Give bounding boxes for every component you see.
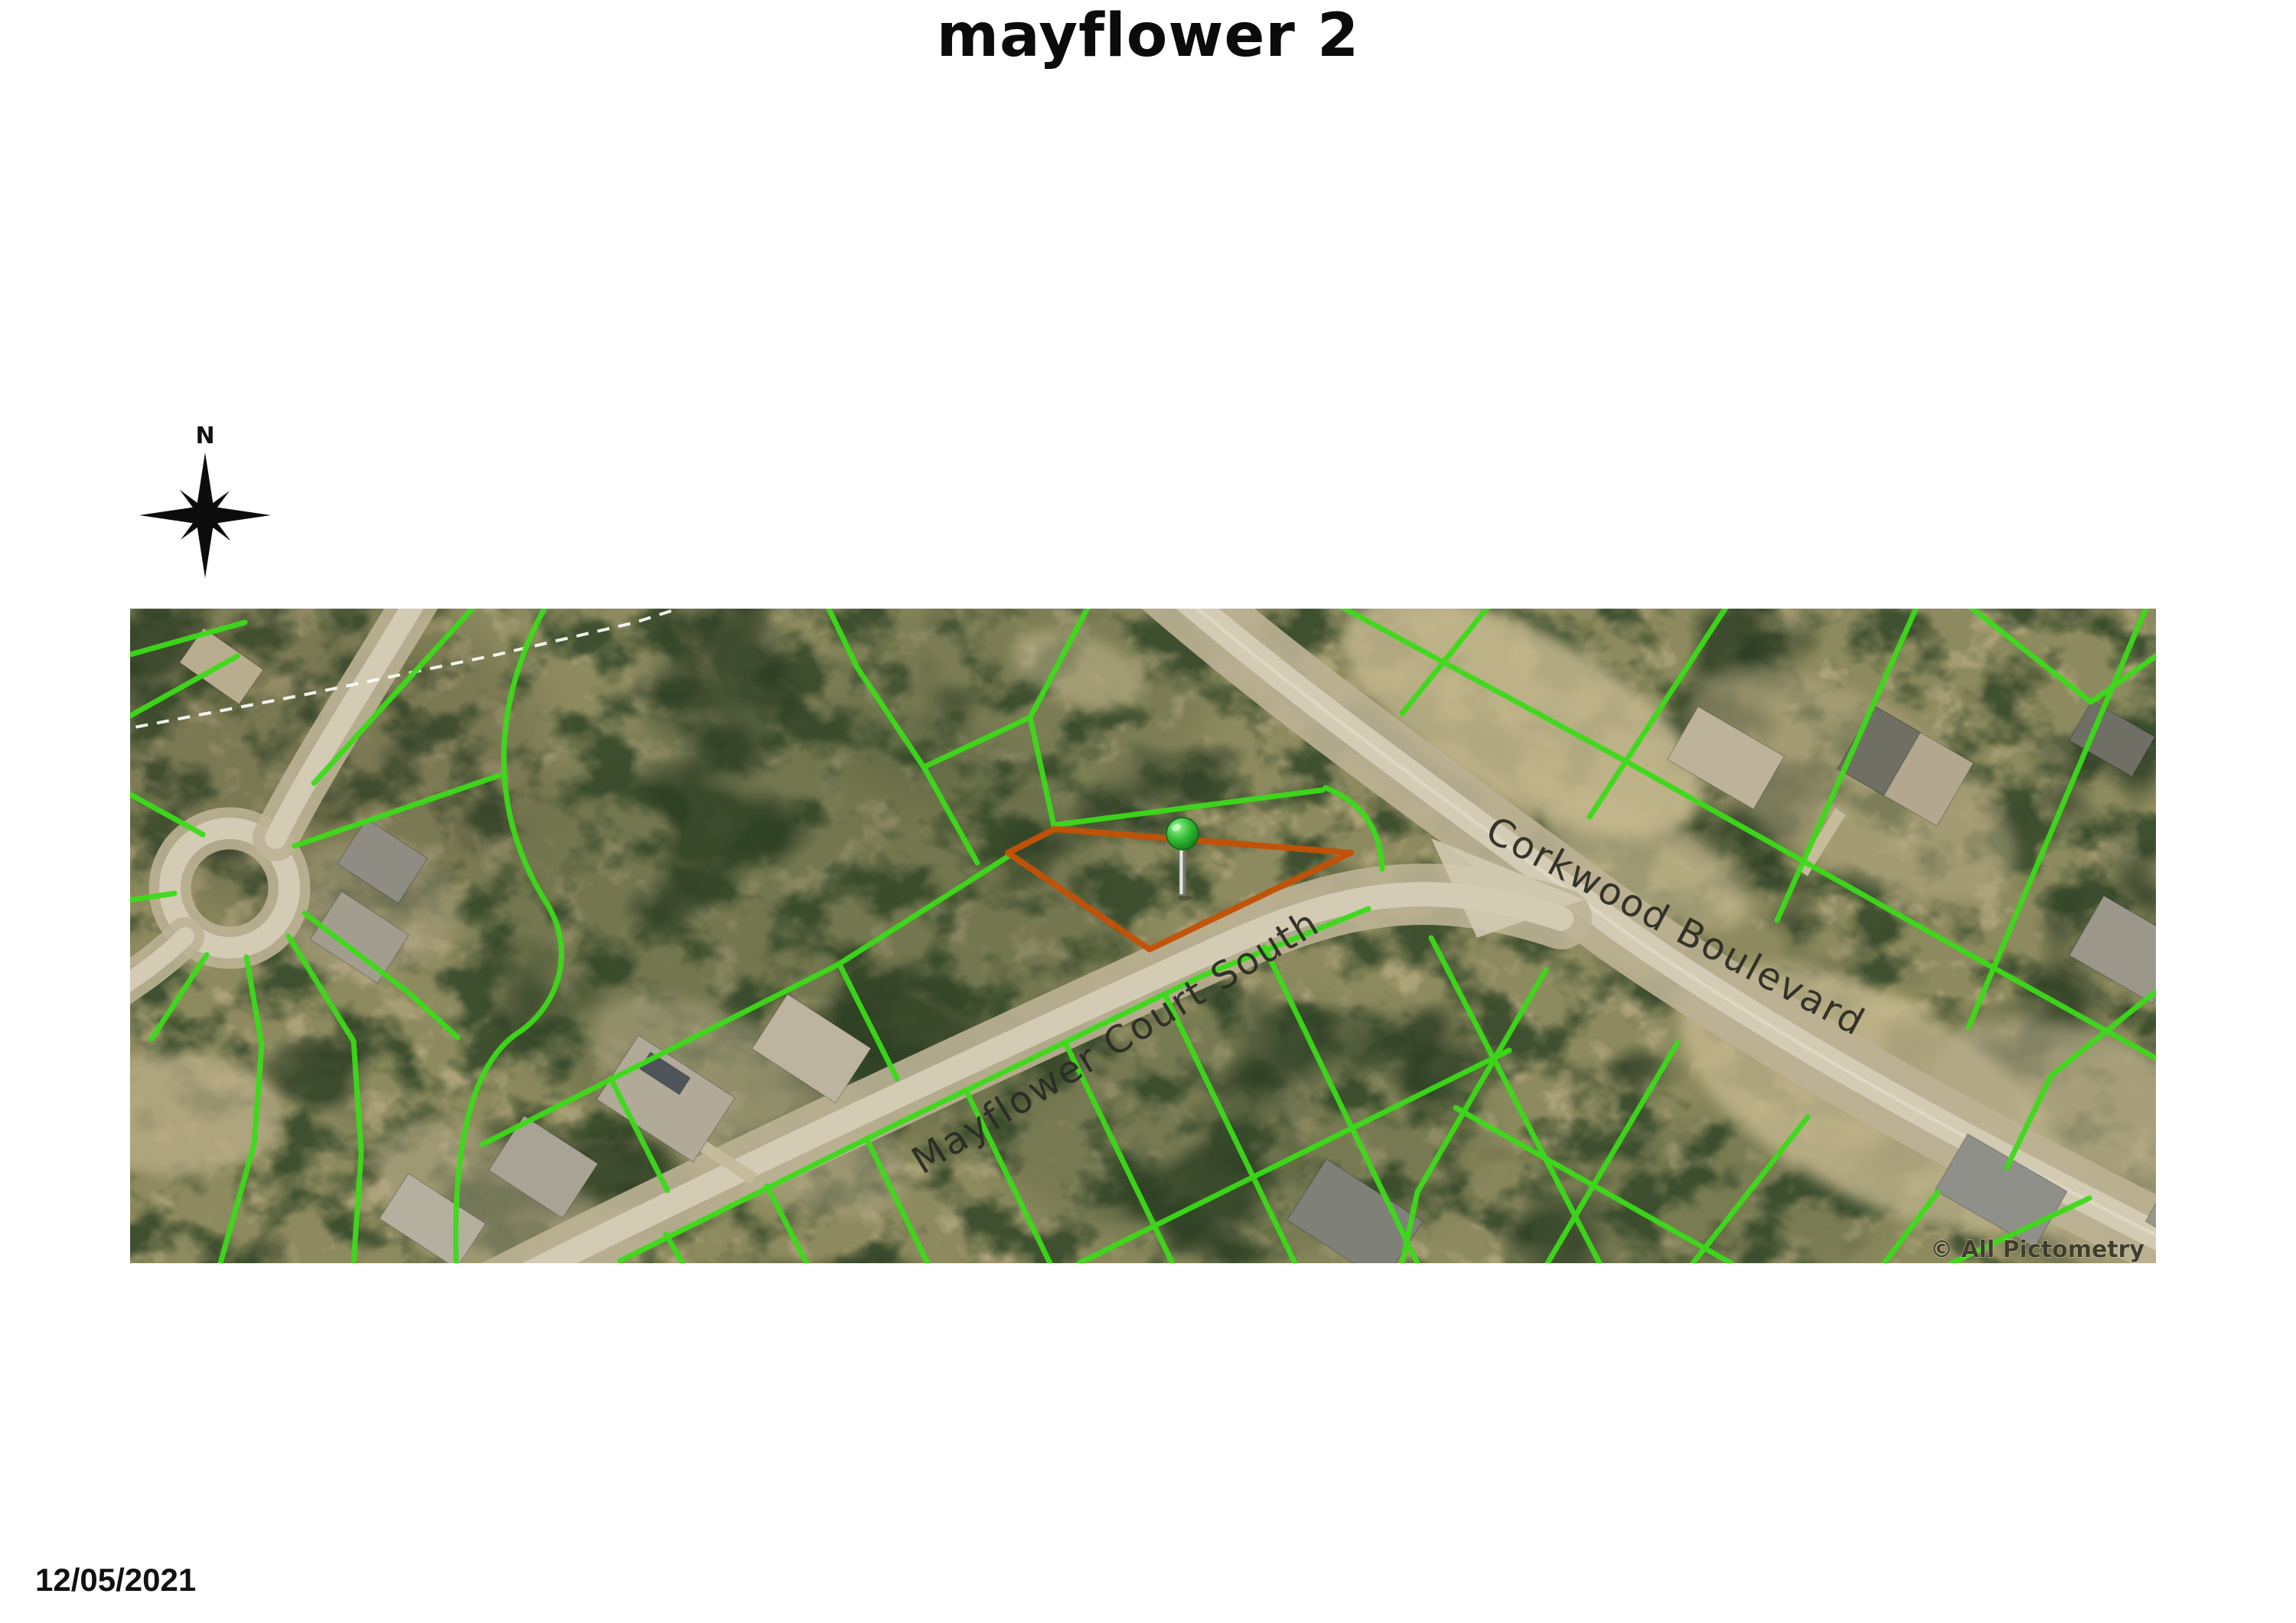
compass-north-label: N xyxy=(195,423,214,449)
report-date: 12/05/2021 xyxy=(35,1562,196,1599)
compass-rose-icon: N xyxy=(129,410,282,586)
attribution-watermark: © All Pictometry xyxy=(1930,1236,2144,1263)
report-page: mayflower 2 N xyxy=(0,0,2296,1623)
page-title: mayflower 2 xyxy=(0,2,2296,70)
compass-star xyxy=(139,452,271,578)
aerial-map: Corkwood Boulevard Mayflower Court South… xyxy=(130,609,2156,1263)
